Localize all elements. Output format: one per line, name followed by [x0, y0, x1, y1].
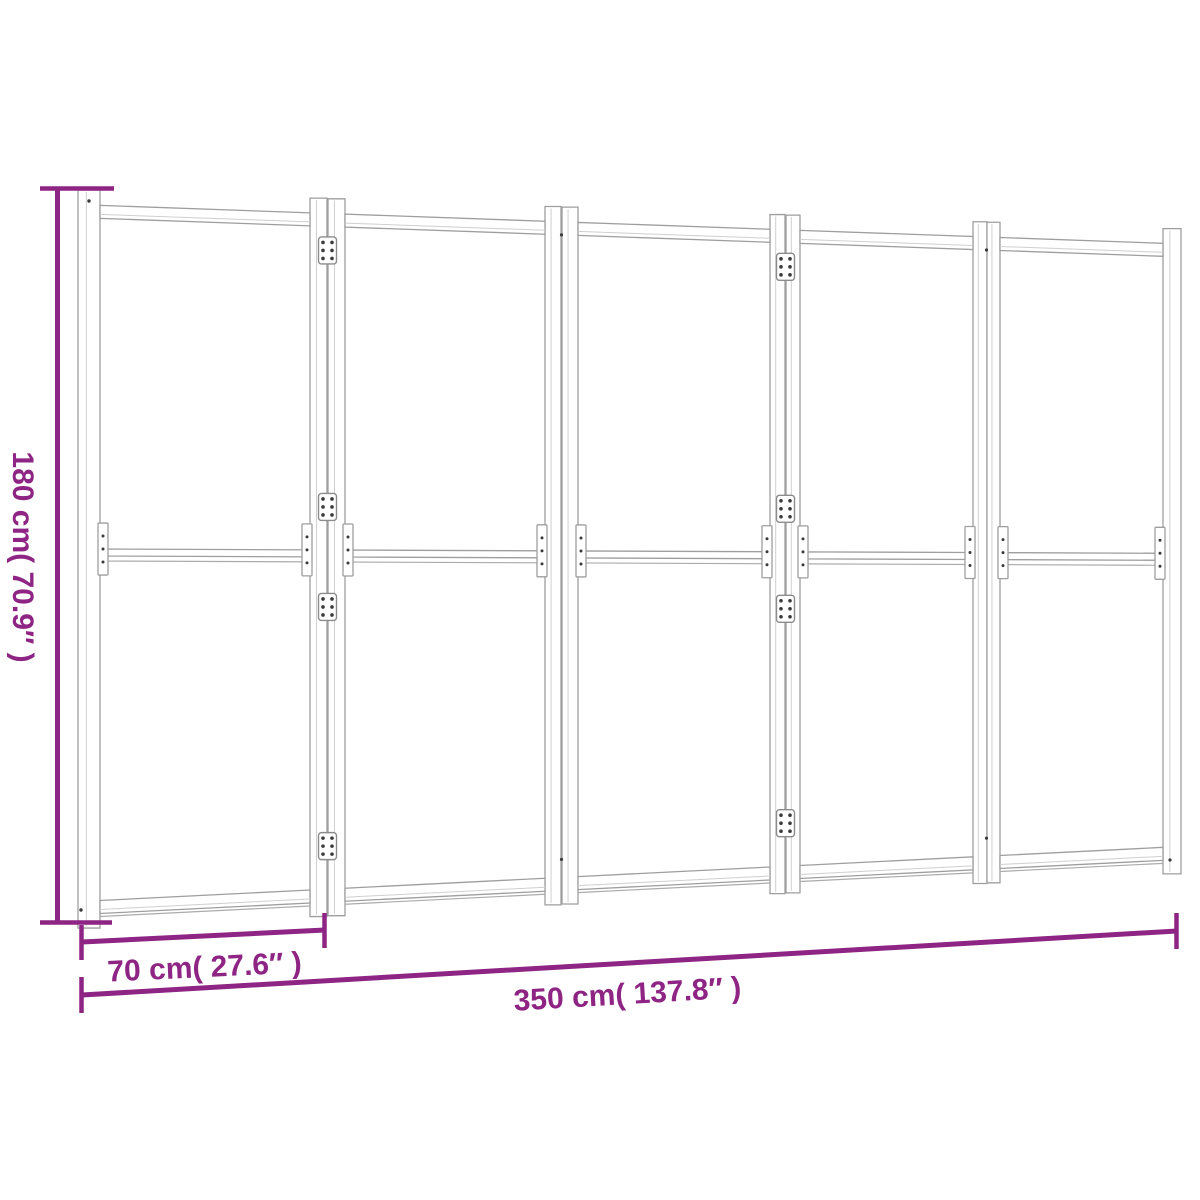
- screw-dot: [766, 550, 769, 553]
- panel-width-dimension-line: [82, 930, 325, 942]
- screw-dot: [560, 233, 563, 236]
- frame-edge-line: [578, 563, 770, 564]
- screw-dot: [985, 837, 988, 840]
- screw-dot: [802, 550, 805, 553]
- screw-dot: [321, 513, 325, 517]
- screw-dot: [330, 613, 334, 617]
- frame-edge-line: [345, 562, 545, 563]
- screw-dot: [541, 536, 544, 539]
- screw-dot: [1002, 551, 1005, 554]
- screw-dot: [779, 265, 783, 269]
- bottom-rail: [345, 878, 545, 901]
- screw-dot: [321, 249, 325, 253]
- screw-dot: [330, 513, 334, 517]
- screw-dot: [802, 537, 805, 540]
- screw-dot: [788, 515, 792, 519]
- screw-dot: [330, 836, 334, 840]
- screw-dot: [87, 199, 90, 202]
- height-dimension-label: 180 cm( 70.9″ ): [6, 451, 39, 662]
- screw-dot: [580, 562, 583, 565]
- screw-dot: [779, 507, 783, 511]
- screw-dot: [580, 549, 583, 552]
- screw-dot: [1168, 858, 1171, 861]
- screw-dot: [321, 597, 325, 601]
- middle-rail: [345, 550, 545, 558]
- middle-rail: [100, 549, 310, 557]
- screw-dot: [788, 599, 792, 603]
- screw-dot: [321, 257, 325, 261]
- screw-dot: [347, 536, 350, 539]
- screw-dot: [330, 605, 334, 609]
- middle-rail: [578, 551, 770, 559]
- screw-dot: [321, 605, 325, 609]
- screw-dot: [1159, 552, 1162, 555]
- screw-dot: [347, 549, 350, 552]
- screw-dot: [788, 615, 792, 619]
- screw-dot: [330, 257, 334, 261]
- screw-dot: [321, 241, 325, 245]
- screw-dot: [321, 505, 325, 509]
- screw-dot: [102, 548, 105, 551]
- bottom-rail: [100, 890, 310, 914]
- diagram-svg: 180 cm( 70.9″ ) 70 cm( 27.6″ ) 350 cm( 1…: [0, 0, 1200, 1200]
- screw-dot: [779, 829, 783, 833]
- screw-dot: [779, 615, 783, 619]
- screw-dot: [580, 536, 583, 539]
- frame-post: [1163, 229, 1181, 874]
- frame-edge-line: [800, 564, 973, 565]
- bottom-rail: [800, 857, 973, 879]
- screw-dot: [788, 607, 792, 611]
- frame-post: [78, 190, 100, 928]
- screw-dot: [788, 273, 792, 277]
- screw-dot: [788, 499, 792, 503]
- middle-rail: [800, 552, 973, 560]
- screw-dot: [1159, 539, 1162, 542]
- screw-dot: [788, 813, 792, 817]
- screw-dot: [779, 607, 783, 611]
- screw-dot: [330, 852, 334, 856]
- screw-dot: [321, 497, 325, 501]
- screw-dot: [102, 561, 105, 564]
- divider-frame: [78, 190, 1181, 928]
- screw-dot: [779, 599, 783, 603]
- screw-dot: [330, 844, 334, 848]
- screw-dot: [321, 836, 325, 840]
- screw-dot: [788, 829, 792, 833]
- screw-dot: [102, 535, 105, 538]
- screw-dot: [788, 507, 792, 511]
- screw-dot: [779, 499, 783, 503]
- screw-dot: [766, 537, 769, 540]
- product-dimension-diagram: 180 cm( 70.9″ ) 70 cm( 27.6″ ) 350 cm( 1…: [0, 0, 1200, 1200]
- total-width-dimension-label: 350 cm( 137.8″ ): [513, 971, 742, 1017]
- screw-dot: [330, 597, 334, 601]
- panel-width-dimension: 70 cm( 27.6″ ): [82, 913, 326, 989]
- screw-dot: [306, 548, 309, 551]
- screw-dot: [321, 852, 325, 856]
- screw-dot: [306, 535, 309, 538]
- screw-dot: [321, 613, 325, 617]
- screw-dot: [779, 257, 783, 261]
- screw-dot: [788, 821, 792, 825]
- screw-dot: [330, 505, 334, 509]
- screw-dot: [788, 265, 792, 269]
- screw-dot: [306, 561, 309, 564]
- screw-dot: [969, 538, 972, 541]
- screw-dot: [766, 563, 769, 566]
- screw-dot: [788, 257, 792, 261]
- middle-rail: [1000, 553, 1163, 561]
- screw-dot: [779, 813, 783, 817]
- screw-dot: [560, 858, 563, 861]
- screw-dot: [1002, 538, 1005, 541]
- screw-dot: [969, 551, 972, 554]
- screw-dot: [1159, 565, 1162, 568]
- screw-dot: [779, 515, 783, 519]
- screw-dot: [347, 562, 350, 565]
- frame-edge-line: [1000, 565, 1163, 566]
- screw-dot: [985, 248, 988, 251]
- frame-edge-line: [100, 561, 310, 562]
- screw-dot: [330, 241, 334, 245]
- screw-dot: [321, 844, 325, 848]
- bottom-rail: [578, 867, 770, 890]
- screw-dot: [330, 497, 334, 501]
- screw-dot: [802, 563, 805, 566]
- screw-dot: [330, 249, 334, 253]
- screw-dot: [1002, 564, 1005, 567]
- screw-dot: [541, 549, 544, 552]
- screw-dot: [541, 562, 544, 565]
- screw-dot: [79, 908, 82, 911]
- screw-dot: [969, 564, 972, 567]
- screw-dot: [779, 821, 783, 825]
- screw-dot: [779, 273, 783, 277]
